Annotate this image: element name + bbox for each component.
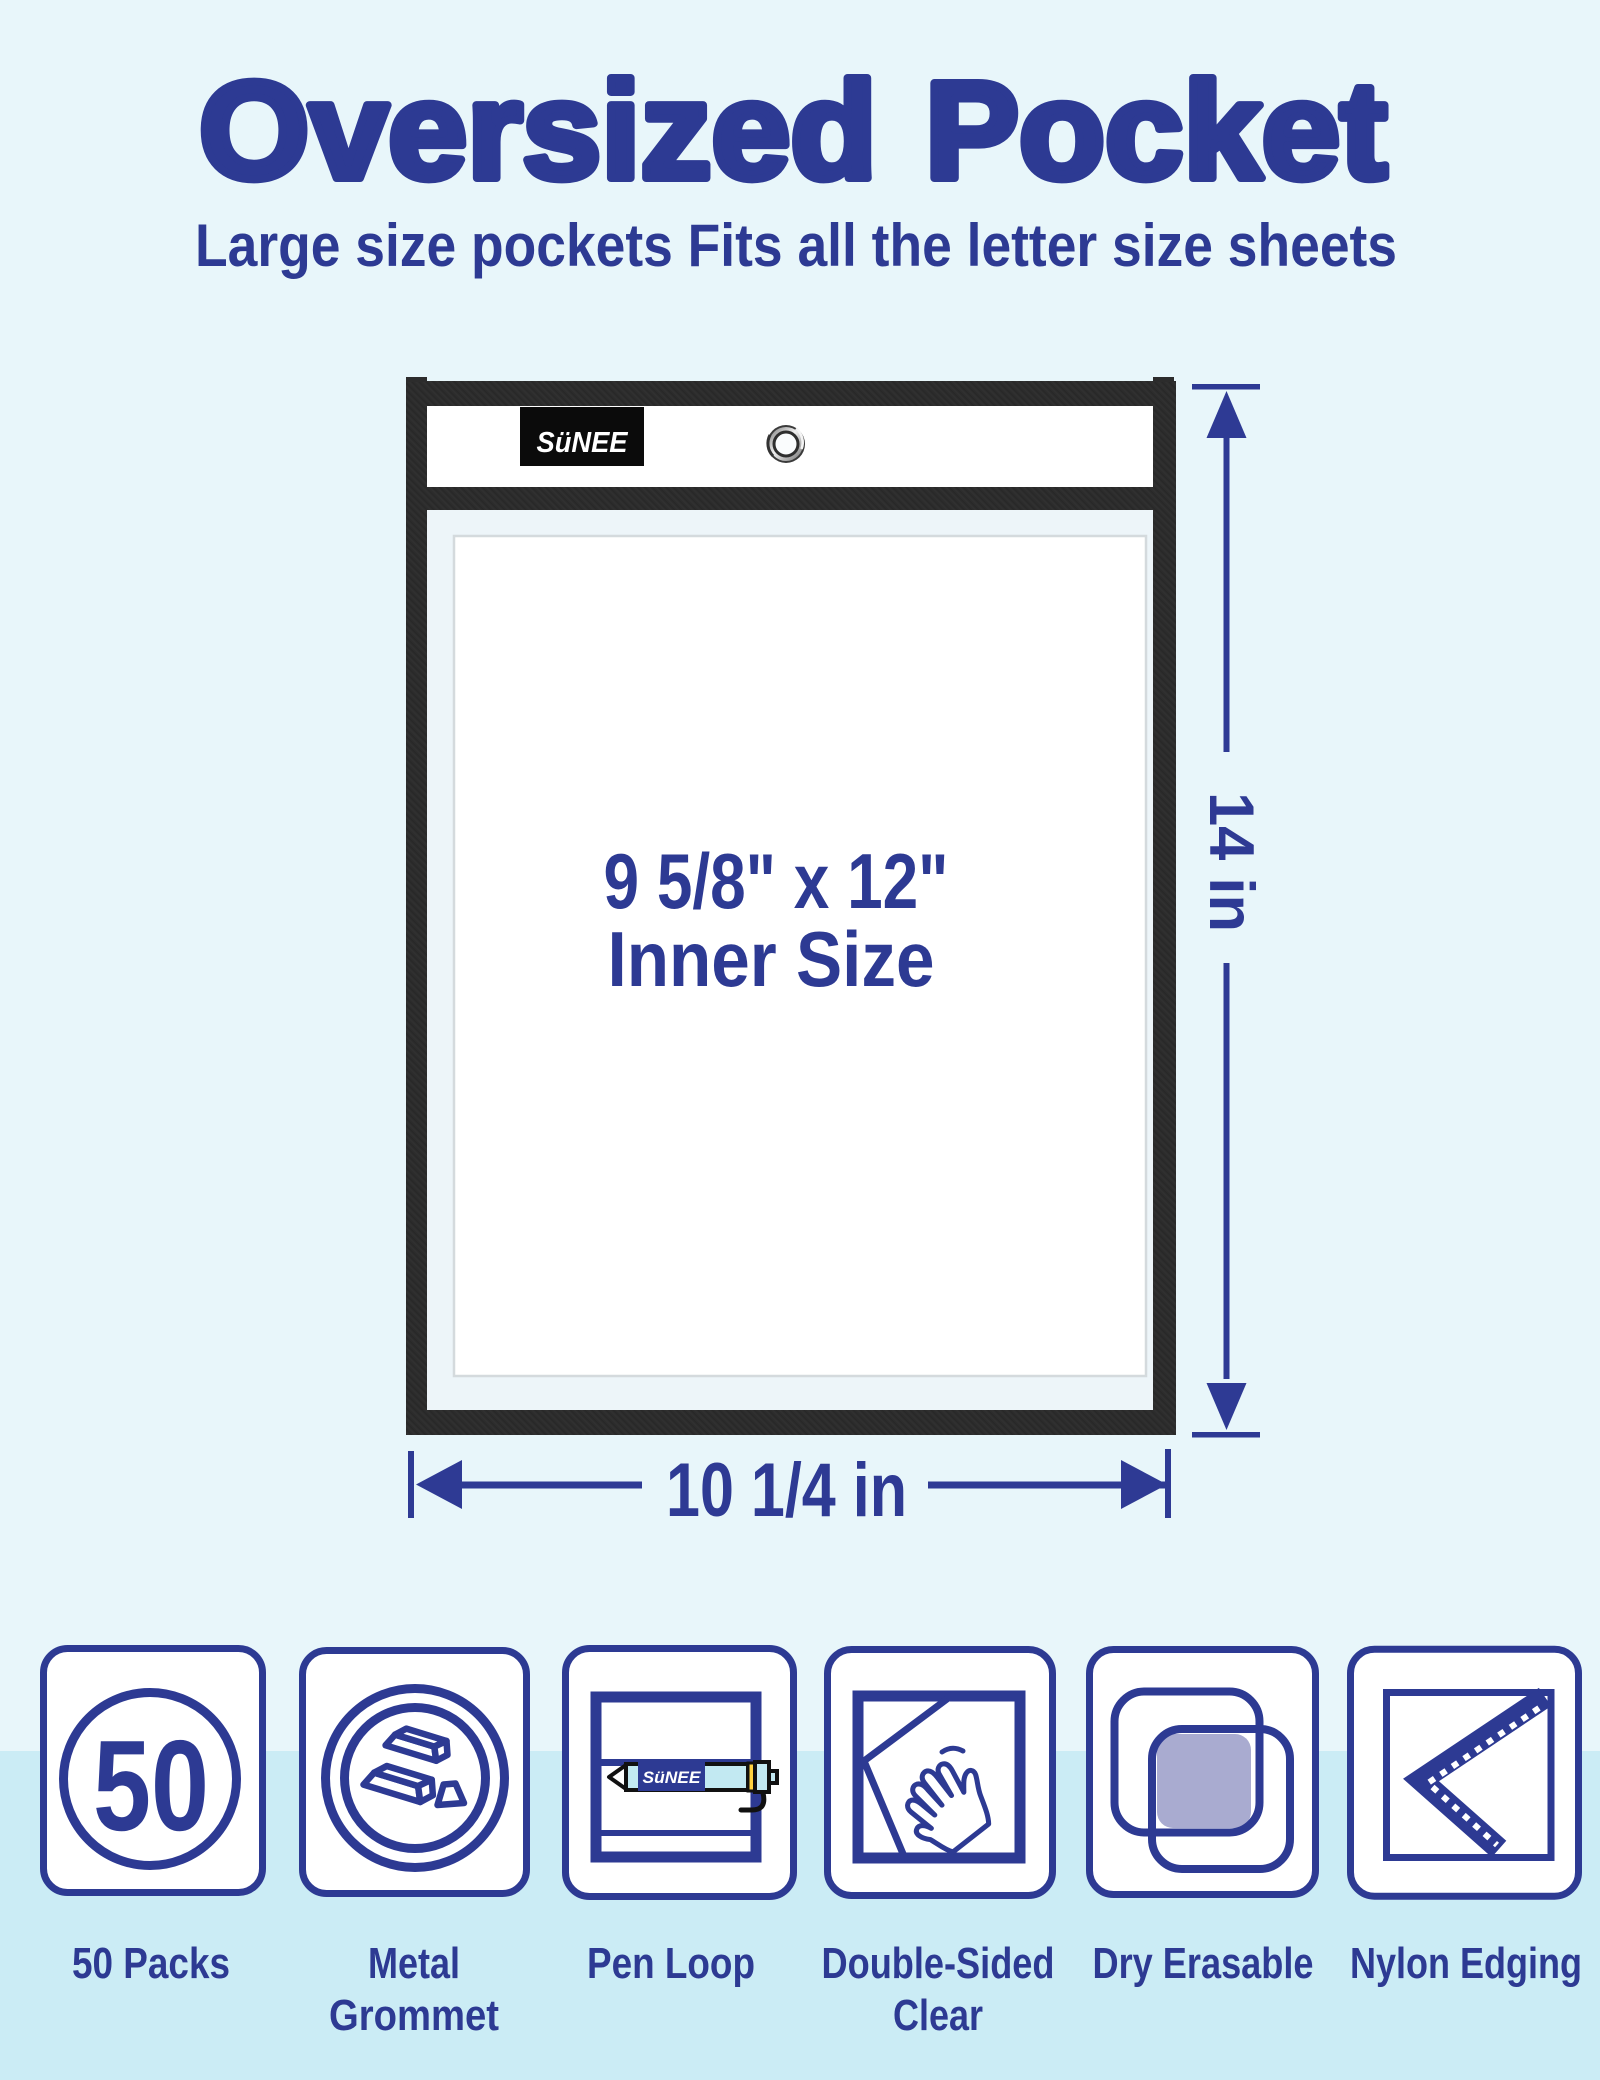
svg-text:SüNEE: SüNEE — [537, 427, 630, 459]
svg-text:50: 50 — [93, 1714, 209, 1858]
svg-text:14 in: 14 in — [1196, 792, 1266, 932]
svg-text:Inner Size: Inner Size — [608, 915, 935, 1003]
svg-text:Pen Loop: Pen Loop — [587, 1939, 755, 1988]
svg-text:Pocket: Pocket — [925, 54, 1387, 208]
svg-text:10 1/4 in: 10 1/4 in — [666, 1448, 907, 1533]
svg-text:Clear: Clear — [893, 1991, 983, 2040]
svg-text:Dry Erasable: Dry Erasable — [1093, 1939, 1314, 1988]
svg-text:Grommet: Grommet — [329, 1991, 499, 2040]
svg-text:9 5/8" x 12": 9 5/8" x 12" — [604, 837, 949, 925]
svg-text:Nylon Edging: Nylon Edging — [1350, 1939, 1582, 1988]
svg-text:SüNEE: SüNEE — [643, 1768, 702, 1787]
svg-text:Large size pockets Fits all th: Large size pockets Fits all the letter s… — [195, 212, 1397, 279]
svg-text:Double-Sided: Double-Sided — [822, 1939, 1055, 1988]
svg-text:Metal: Metal — [368, 1939, 460, 1988]
svg-text:50 Packs: 50 Packs — [72, 1939, 230, 1988]
svg-text:Oversized: Oversized — [199, 54, 877, 208]
